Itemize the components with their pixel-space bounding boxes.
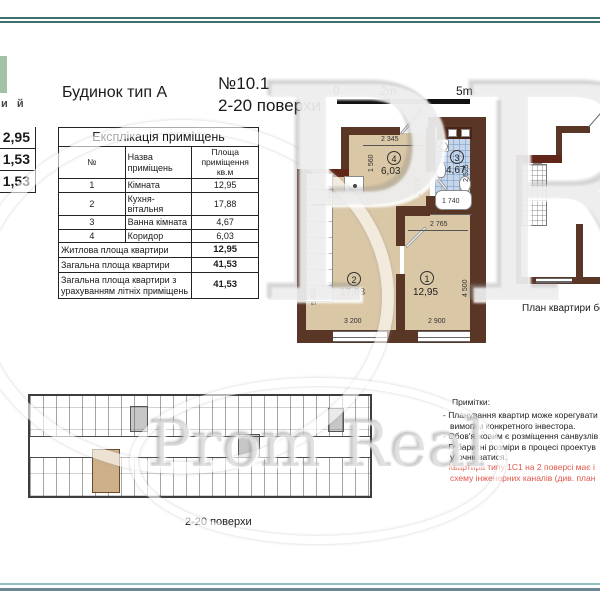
wall bbox=[516, 155, 562, 163]
plan-sheet: и й 2,95 1,53 1,53 Будинок тип А №10.1 2… bbox=[0, 0, 600, 600]
note-line: - Планування квартир може корегувати bbox=[443, 410, 600, 420]
notes: Примітки: - Планування квартир може коре… bbox=[443, 397, 600, 483]
overview-corridor bbox=[30, 436, 370, 458]
note-line-red: схему інженерних каналів (див. план bbox=[443, 473, 600, 483]
note-line: - Обов'язковим є розміщення санвузлів bbox=[443, 431, 600, 441]
mini-plan-caption: План квартири без м bbox=[522, 303, 600, 314]
note-line: уточнюватися. bbox=[443, 452, 600, 462]
note-line-red: - Квартира типу 1С1 на 2 поверсі має і bbox=[443, 462, 600, 472]
mini-window bbox=[536, 278, 572, 283]
wall bbox=[576, 224, 583, 284]
elevator-core bbox=[238, 434, 260, 458]
mini-plan: План квартири без м bbox=[0, 0, 600, 600]
note-line: - Габаритні розміри в процесі проектув bbox=[443, 442, 600, 452]
overview-floor-plan bbox=[28, 394, 372, 498]
note-line: вимогам конкретного інвестора. bbox=[443, 421, 600, 431]
notes-title: Примітки: bbox=[443, 397, 600, 407]
stair-core bbox=[328, 408, 344, 432]
stair-core bbox=[130, 406, 148, 432]
mini-counter-hatch bbox=[521, 164, 547, 226]
highlighted-apartment bbox=[92, 449, 120, 493]
overview-caption: 2-20 поверхи bbox=[185, 516, 252, 528]
leader-line bbox=[588, 113, 600, 127]
